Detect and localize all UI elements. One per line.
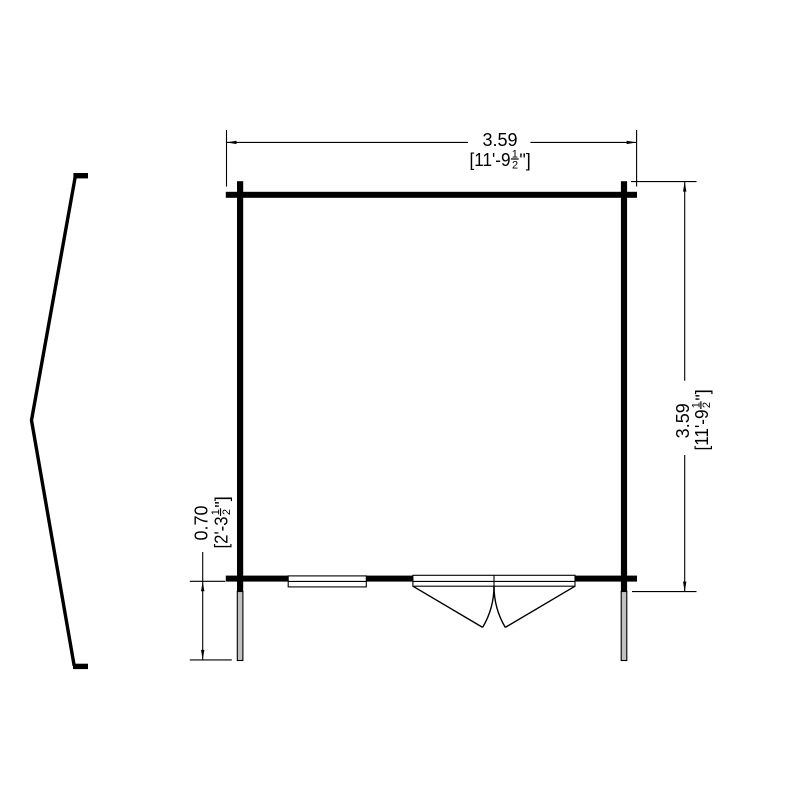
svg-text:[2'-3: [2'-3 <box>212 517 232 549</box>
svg-text:2: 2 <box>221 509 233 515</box>
svg-text:[11'-9: [11'-9 <box>470 150 511 170</box>
svg-text:"]: "] <box>212 496 232 507</box>
svg-text:"]: "] <box>519 151 530 171</box>
svg-text:2: 2 <box>701 402 713 408</box>
svg-text:0.70: 0.70 <box>192 505 212 540</box>
svg-text:[11'-9: [11'-9 <box>692 410 712 451</box>
svg-text:3.59: 3.59 <box>482 130 517 150</box>
svg-text:2: 2 <box>512 159 518 171</box>
svg-text:"]: "] <box>693 389 713 400</box>
